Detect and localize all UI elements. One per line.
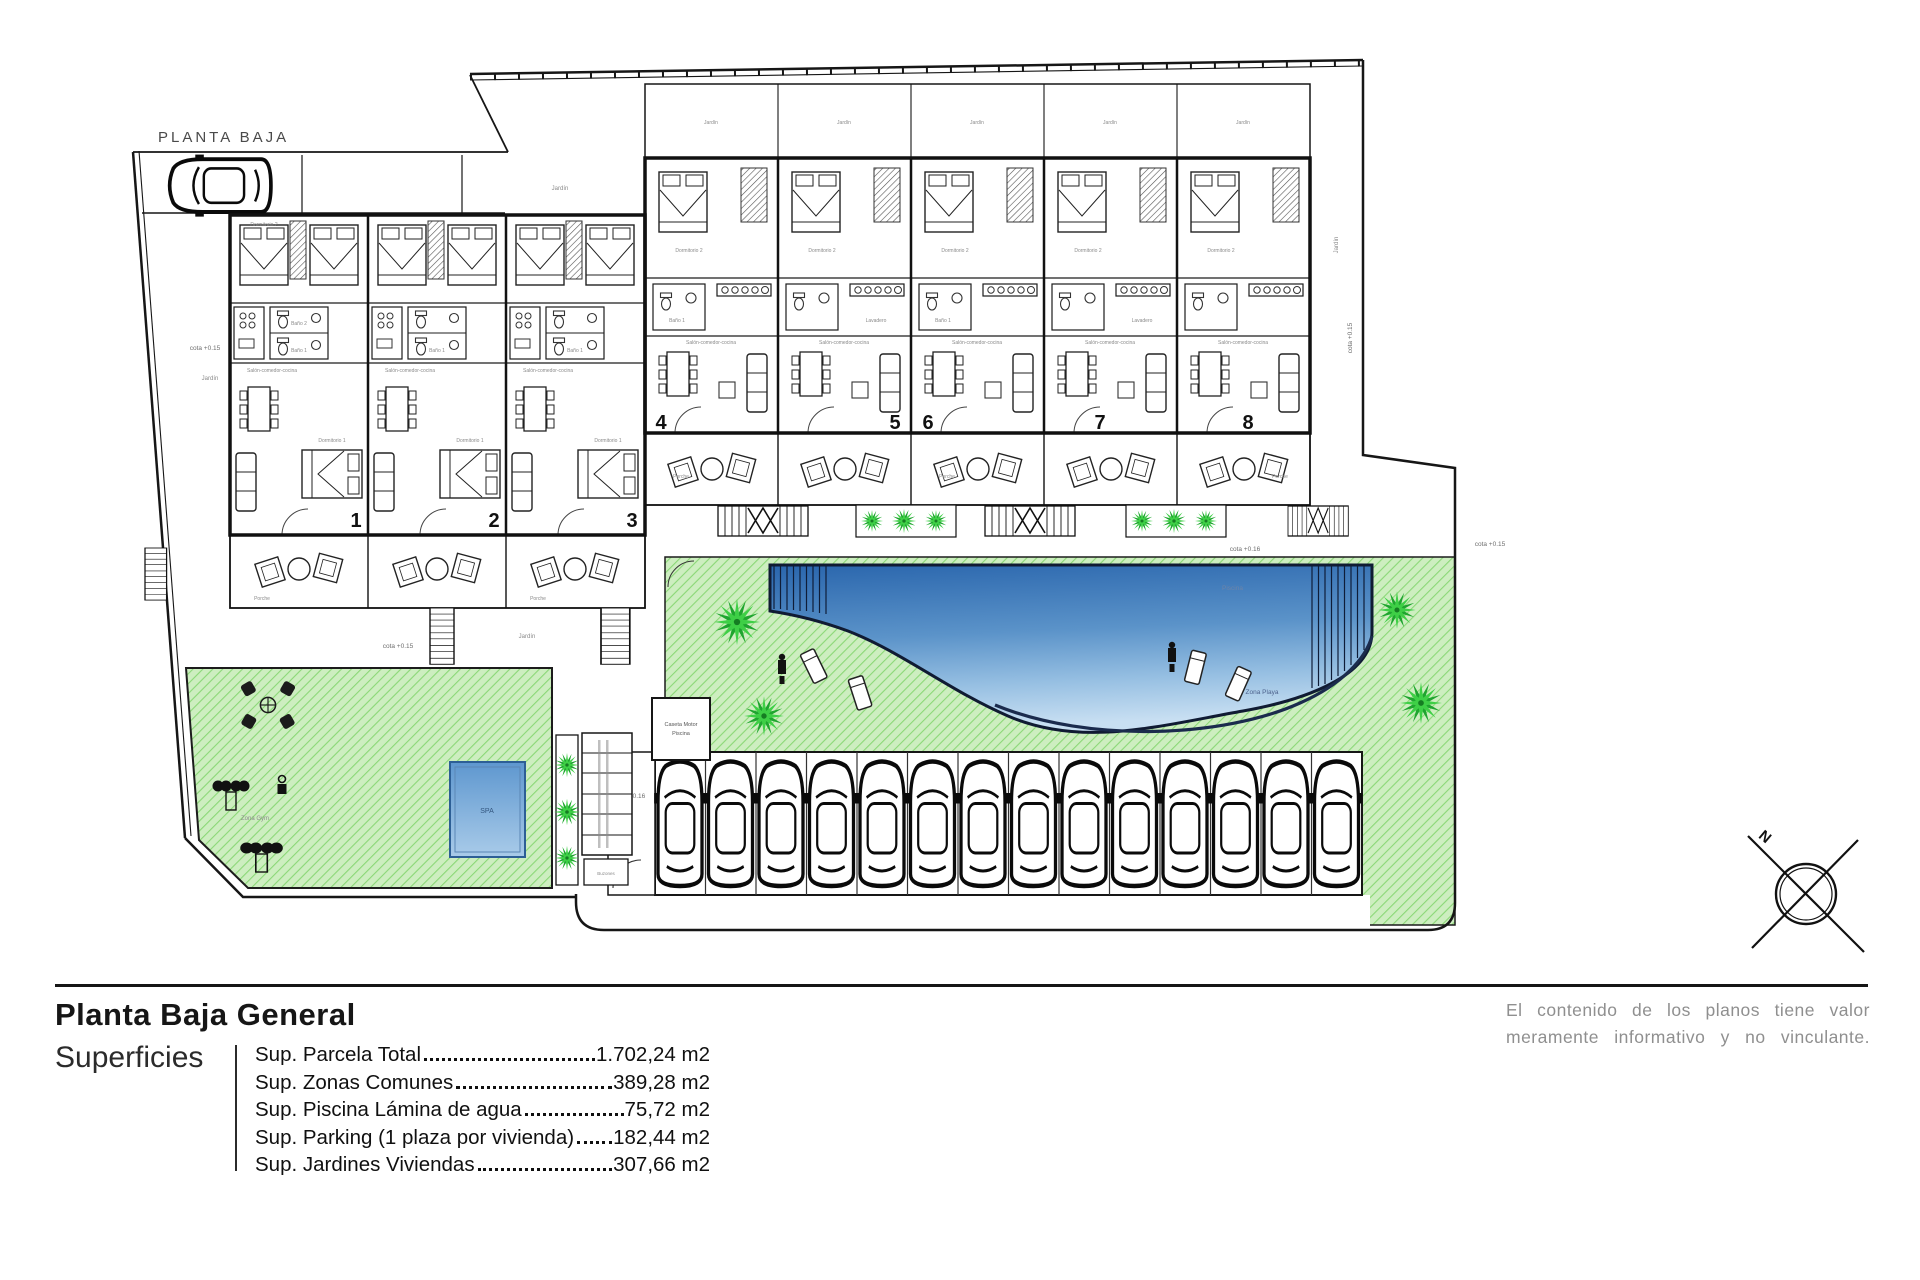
svg-text:Salón-comedor-cocina: Salón-comedor-cocina (523, 368, 573, 374)
svg-text:Porche: Porche (254, 596, 270, 602)
svg-text:Dormitorio 2: Dormitorio 2 (1074, 248, 1101, 254)
svg-text:Lavadero: Lavadero (1132, 318, 1153, 324)
unit-number: 6 (922, 412, 933, 434)
svg-text:Dormitorio 2: Dormitorio 2 (1207, 248, 1234, 254)
porch-furniture (531, 553, 619, 587)
spa-pool: SPA (450, 762, 525, 857)
dotted-leader (424, 1058, 595, 1061)
stairs (430, 608, 454, 664)
surface-label: Sup. Parking (1 plaza por vivienda) (255, 1124, 574, 1152)
svg-text:Dormitorio 1: Dormitorio 1 (594, 438, 621, 444)
north-label: N (1755, 827, 1774, 847)
porch-furniture (393, 553, 481, 587)
svg-text:Baño 2: Baño 2 (291, 321, 307, 327)
left-building: 1 2 3 Baño 2 Baño 1 Baño 1 Baño 1 Salón-… (145, 215, 645, 664)
unit-number: 4 (655, 412, 667, 434)
svg-text:Jardín: Jardín (1103, 120, 1117, 126)
svg-text:cota +0.15: cota +0.15 (1347, 322, 1354, 353)
surface-value: 307,66 m2 (613, 1151, 710, 1179)
svg-text:Jardín: Jardín (519, 634, 536, 640)
svg-text:Jardín: Jardín (202, 376, 219, 382)
surface-row: Sup. Jardines Viviendas 307,66 m2 (255, 1151, 710, 1179)
surface-row: Sup. Parcela Total 1.702,24 m2 (255, 1041, 710, 1069)
legend-section-label: Superficies (55, 1041, 235, 1179)
svg-text:Baño 1: Baño 1 (669, 318, 685, 324)
svg-text:Salón-comedor-cocina: Salón-comedor-cocina (385, 368, 435, 374)
car-icon (1311, 762, 1363, 887)
compass-icon: N (1748, 827, 1864, 952)
porch-furniture (1067, 453, 1155, 487)
unit-interior (1177, 168, 1310, 433)
svg-text:Jardín: Jardín (837, 120, 851, 126)
car-icon (907, 762, 959, 887)
surface-label: Sup. Piscina Lámina de agua (255, 1096, 522, 1124)
car-icon (1260, 762, 1312, 887)
car-icon (170, 155, 271, 217)
surface-value: 182,44 m2 (613, 1124, 710, 1152)
svg-text:Jardín: Jardín (552, 186, 569, 192)
surface-label: Sup. Jardines Viviendas (255, 1151, 475, 1179)
spa-label: SPA (480, 808, 494, 815)
porch-furniture (1200, 453, 1288, 487)
pool-motor-shed: Caseta Motor Piscina (652, 698, 710, 760)
parking-area: cota +0.16 (608, 752, 1370, 928)
svg-text:Porche: Porche (1272, 474, 1288, 480)
car-icon (705, 762, 757, 887)
svg-text:Dormitorio 2: Dormitorio 2 (675, 248, 702, 254)
unit-number: 5 (889, 412, 900, 434)
car-icon (856, 762, 908, 887)
mailboxes-label: Buzones (597, 871, 615, 876)
svg-text:Porche: Porche (530, 596, 546, 602)
unit-interior (645, 168, 778, 433)
palm-tree-icon (550, 795, 584, 829)
svg-text:Salón-comedor-cocina: Salón-comedor-cocina (1218, 340, 1268, 346)
svg-text:Jardín: Jardín (970, 120, 984, 126)
svg-text:Dormitorio 1: Dormitorio 1 (318, 438, 345, 444)
floor-plan-drawing: Piscina Zona Playa SPA 1 2 3 Baño 2 Baño… (0, 0, 1920, 970)
svg-text:cota +0.16: cota +0.16 (1230, 546, 1261, 553)
svg-text:Baño 1: Baño 1 (567, 348, 583, 354)
svg-text:Salón-comedor-cocina: Salón-comedor-cocina (952, 340, 1002, 346)
svg-text:Dormitorio 1: Dormitorio 1 (456, 438, 483, 444)
unit-interior (230, 221, 368, 535)
porch-furniture (801, 453, 889, 487)
exterior-stairs (1288, 506, 1348, 536)
surface-row: Sup. Piscina Lámina de agua 75,72 m2 (255, 1096, 710, 1124)
street-parking-stall (142, 155, 505, 217)
svg-text:Dormitorio 2: Dormitorio 2 (250, 222, 277, 228)
stairs (145, 548, 167, 600)
unit-number: 8 (1242, 412, 1253, 434)
car-icon (1109, 762, 1161, 887)
car-icon (654, 762, 706, 887)
dotted-leader (478, 1168, 613, 1171)
unit-interior (506, 221, 644, 535)
unit-number: 3 (626, 510, 637, 532)
surface-label: Sup. Parcela Total (255, 1041, 421, 1069)
dotted-leader (456, 1086, 612, 1089)
svg-text:Salón-comedor-cocina: Salón-comedor-cocina (247, 368, 297, 374)
dotted-leader (525, 1113, 624, 1116)
porch-furniture (668, 453, 756, 487)
disclaimer-line: meramente informativo y no vinculante. (1506, 1024, 1870, 1051)
car-icon (1008, 762, 1060, 887)
car-icon (755, 762, 807, 887)
surface-value: 1.702,24 m2 (596, 1041, 710, 1069)
svg-text:Baño 1: Baño 1 (935, 318, 951, 324)
gym-zone-label: Zona Gym (241, 816, 269, 822)
car-icon (1058, 762, 1110, 887)
svg-text:Baño 1: Baño 1 (291, 348, 307, 354)
floor-plan-sheet: Piscina Zona Playa SPA 1 2 3 Baño 2 Baño… (0, 0, 1920, 1280)
porch-furniture (934, 453, 1022, 487)
car-icon (957, 762, 1009, 887)
svg-text:Caseta Motor: Caseta Motor (664, 722, 697, 728)
svg-text:Dormitorio 2: Dormitorio 2 (941, 248, 968, 254)
svg-text:Piscina: Piscina (672, 731, 691, 737)
svg-text:Baño 1: Baño 1 (429, 348, 445, 354)
storage-and-mailboxes: Buzones (550, 733, 632, 885)
svg-text:Lavadero: Lavadero (866, 318, 887, 324)
unit-interior (911, 168, 1044, 433)
beach-zone-label: Zona Playa (1246, 689, 1279, 696)
svg-text:Jardín: Jardín (704, 120, 718, 126)
plan-title: PLANTA BAJA (158, 129, 289, 146)
car-icon (1159, 762, 1211, 887)
car-icon (1210, 762, 1262, 887)
surface-row: Sup. Parking (1 plaza por vivienda) 182,… (255, 1124, 710, 1152)
unit-interior (368, 221, 506, 535)
unit-number: 2 (488, 510, 499, 532)
pool-label: Piscina (1222, 585, 1243, 592)
unit-number: 7 (1094, 412, 1105, 434)
exterior-stairs (718, 506, 808, 536)
stairs (601, 608, 630, 664)
unit-number: 1 (350, 510, 361, 532)
surface-row: Sup. Zonas Comunes 389,28 m2 (255, 1069, 710, 1097)
unit-interior (778, 168, 911, 433)
svg-text:Jardín: Jardín (1236, 120, 1250, 126)
svg-text:cota +0.15: cota +0.15 (190, 345, 221, 352)
svg-text:cota +0.15: cota +0.15 (383, 643, 414, 650)
dotted-leader (577, 1141, 612, 1144)
disclaimer: El contenido de los planos tiene valor m… (1506, 997, 1870, 1051)
car-icon (806, 762, 858, 887)
surface-value: 75,72 m2 (625, 1096, 710, 1124)
surface-label: Sup. Zonas Comunes (255, 1069, 453, 1097)
legend-divider (235, 1045, 237, 1171)
surface-value: 389,28 m2 (613, 1069, 710, 1097)
exterior-stairs (985, 506, 1075, 536)
svg-text:Dormitorio 2: Dormitorio 2 (808, 248, 835, 254)
unit-interior (1044, 168, 1177, 433)
svg-text:Porche: Porche (673, 474, 689, 480)
svg-text:Porche: Porche (939, 474, 955, 480)
porch-furniture (255, 553, 343, 587)
surface-table: Sup. Parcela Total 1.702,24 m2 Sup. Zona… (255, 1041, 710, 1179)
svg-text:Jardín: Jardín (1334, 237, 1340, 254)
svg-text:Salón-comedor-cocina: Salón-comedor-cocina (686, 340, 736, 346)
svg-text:Salón-comedor-cocina: Salón-comedor-cocina (1085, 340, 1135, 346)
right-building: 4 5 6 7 8 Jardín Jardín Jardín Jardín Ja… (645, 84, 1348, 537)
disclaimer-line: El contenido de los planos tiene valor (1506, 997, 1870, 1024)
svg-text:Salón-comedor-cocina: Salón-comedor-cocina (819, 340, 869, 346)
svg-text:cota +0.15: cota +0.15 (1475, 541, 1506, 548)
